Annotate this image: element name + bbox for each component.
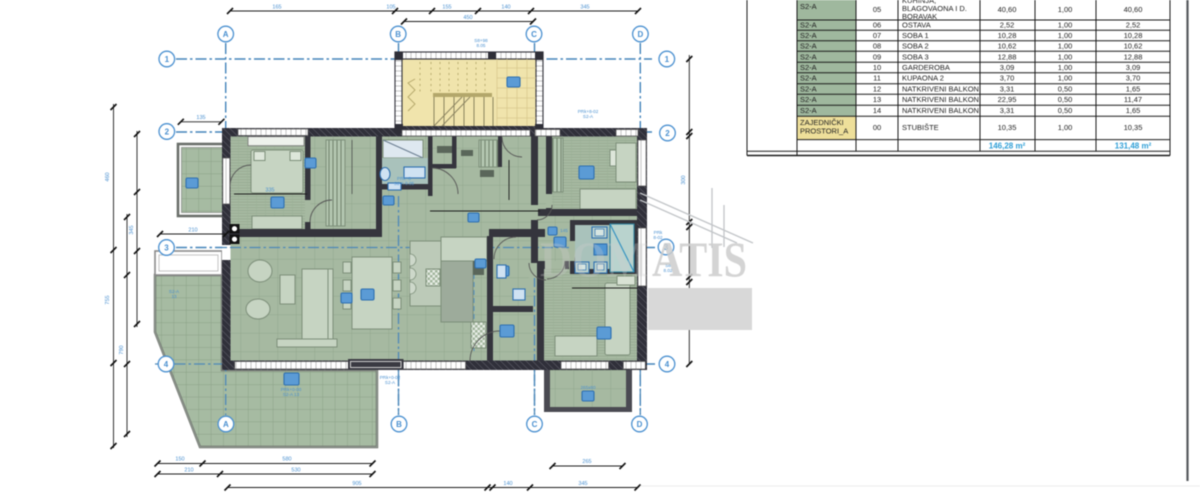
svg-text:S2-A: S2-A (800, 2, 817, 11)
svg-text:S2-A: S2-A (800, 53, 817, 62)
svg-text:300: 300 (681, 175, 687, 184)
svg-text:10,28: 10,28 (1124, 31, 1143, 40)
svg-text:1,00: 1,00 (1058, 63, 1073, 72)
svg-text:265x80: 265x80 (580, 385, 596, 390)
svg-text:DOM: DOM (540, 231, 648, 287)
svg-text:NATKRIVENI BALKON: NATKRIVENI BALKON (902, 85, 979, 94)
svg-text:S2-A: S2-A (800, 21, 817, 30)
svg-text:460: 460 (105, 172, 111, 181)
svg-text:450: 450 (463, 15, 472, 21)
svg-text:S2-A 13: S2-A 13 (283, 392, 300, 397)
svg-text:3,09: 3,09 (1000, 63, 1015, 72)
svg-text:1,00: 1,00 (1058, 123, 1073, 132)
svg-text:2,52: 2,52 (1126, 21, 1141, 30)
svg-text:790: 790 (119, 345, 125, 354)
svg-text:1,00: 1,00 (1058, 21, 1073, 30)
svg-text:SOBA 2: SOBA 2 (902, 42, 929, 51)
svg-text:905: 905 (352, 481, 361, 487)
svg-text:530: 530 (291, 468, 300, 474)
svg-text:4: 4 (665, 360, 670, 369)
svg-text:22,95: 22,95 (998, 95, 1017, 104)
svg-text:S2-A: S2-A (385, 380, 396, 385)
svg-text:1,00: 1,00 (1058, 5, 1073, 14)
svg-text:3,09: 3,09 (1126, 63, 1141, 72)
svg-text:ATIS: ATIS (652, 231, 747, 287)
svg-text:1,00: 1,00 (1058, 74, 1073, 83)
svg-text:1,00: 1,00 (1058, 53, 1073, 62)
svg-text:STUBIŠTE: STUBIŠTE (902, 123, 939, 132)
svg-text:3,70: 3,70 (1126, 74, 1141, 83)
svg-text:S2-A: S2-A (800, 63, 817, 72)
svg-text:2: 2 (665, 129, 670, 138)
svg-text:4: 4 (164, 360, 169, 369)
svg-text:345: 345 (129, 225, 135, 234)
svg-text:13: 13 (171, 294, 177, 299)
svg-text:07: 07 (873, 31, 881, 40)
svg-text:05: 05 (873, 5, 881, 14)
svg-text:0,50: 0,50 (1058, 106, 1073, 115)
svg-text:GARDEROBA: GARDEROBA (902, 63, 950, 72)
svg-text:40,60: 40,60 (1124, 5, 1143, 14)
svg-text:10,28: 10,28 (998, 31, 1017, 40)
svg-text:150: 150 (175, 457, 184, 463)
svg-text:A: A (223, 30, 229, 39)
svg-text:165: 165 (272, 5, 281, 11)
svg-text:10,62: 10,62 (1124, 42, 1143, 51)
svg-text:2: 2 (165, 128, 170, 137)
svg-text:B: B (395, 30, 401, 39)
svg-text:13: 13 (873, 95, 881, 104)
svg-text:1: 1 (665, 55, 670, 64)
svg-text:S2-A: S2-A (800, 95, 817, 104)
svg-text:8.05: 8.05 (477, 43, 486, 48)
svg-text:3,31: 3,31 (1000, 85, 1015, 94)
svg-text:345: 345 (580, 5, 589, 11)
svg-text:D: D (637, 420, 643, 429)
svg-text:210: 210 (188, 228, 197, 234)
svg-text:1,00: 1,00 (1058, 31, 1073, 40)
svg-text:S2-A: S2-A (800, 74, 817, 83)
svg-text:PROSTORI_A: PROSTORI_A (800, 127, 848, 136)
svg-text:1,65: 1,65 (1126, 85, 1141, 94)
svg-text:C: C (531, 30, 537, 39)
svg-text:1: 1 (165, 55, 170, 64)
svg-text:3,70: 3,70 (1000, 74, 1015, 83)
svg-text:0,50: 0,50 (1058, 85, 1073, 94)
svg-text:10: 10 (873, 63, 881, 72)
svg-text:12,88: 12,88 (998, 53, 1017, 62)
svg-text:140: 140 (503, 481, 512, 487)
svg-text:2,52: 2,52 (1000, 21, 1015, 30)
svg-text:NATKRIVENI BALKON: NATKRIVENI BALKON (902, 106, 979, 115)
svg-text:00: 00 (873, 123, 881, 132)
svg-text:SOBA 3: SOBA 3 (902, 53, 929, 62)
svg-text:C: C (532, 420, 538, 429)
svg-text:11,47: 11,47 (1124, 95, 1142, 104)
svg-text:S2-A: S2-A (800, 31, 817, 40)
svg-text:0,50: 0,50 (1058, 95, 1073, 104)
svg-text:40,60: 40,60 (998, 5, 1017, 14)
svg-text:3: 3 (164, 244, 169, 253)
svg-text:105: 105 (386, 5, 395, 11)
svg-text:11: 11 (873, 74, 881, 83)
svg-text:10,35: 10,35 (1124, 123, 1143, 132)
svg-text:OSTAVA: OSTAVA (902, 21, 931, 30)
svg-text:S2-A: S2-A (800, 106, 817, 115)
svg-text:06: 06 (873, 21, 881, 30)
svg-text:S2-A 0.05: S2-A 0.05 (394, 181, 415, 186)
svg-text:S2-A: S2-A (800, 42, 817, 51)
svg-text:09: 09 (873, 53, 881, 62)
svg-text:KUPAONA 2: KUPAONA 2 (902, 74, 944, 83)
svg-text:14: 14 (873, 106, 881, 115)
svg-text:3,31: 3,31 (1000, 106, 1015, 115)
svg-text:12,88: 12,88 (1124, 53, 1143, 62)
svg-text:10,35: 10,35 (998, 123, 1017, 132)
svg-text:12: 12 (873, 85, 881, 94)
svg-text:S2-A: S2-A (800, 85, 817, 94)
svg-text:08: 08 (873, 42, 881, 51)
svg-text:210: 210 (184, 468, 193, 474)
svg-text:265: 265 (582, 459, 591, 465)
svg-text:155: 155 (442, 5, 451, 11)
svg-text:1,65: 1,65 (1126, 106, 1141, 115)
svg-text:131,48 m²: 131,48 m² (1115, 142, 1152, 151)
svg-text:SOBA 1: SOBA 1 (902, 31, 929, 40)
svg-text:335: 335 (265, 188, 274, 194)
svg-text:NATKRIVENI BALKON: NATKRIVENI BALKON (902, 95, 979, 104)
svg-text:1,00: 1,00 (1058, 42, 1073, 51)
svg-text:A: A (223, 420, 229, 429)
svg-text:140: 140 (501, 5, 510, 11)
svg-text:755: 755 (105, 295, 111, 304)
svg-text:135: 135 (196, 115, 205, 121)
svg-text:D: D (638, 30, 644, 39)
svg-text:345: 345 (578, 481, 587, 487)
svg-text:10,62: 10,62 (998, 42, 1017, 51)
svg-text:S2-A: S2-A (583, 114, 594, 119)
svg-text:B: B (396, 420, 402, 429)
svg-text:146,28 m²: 146,28 m² (989, 142, 1026, 151)
svg-text:580: 580 (282, 457, 291, 463)
